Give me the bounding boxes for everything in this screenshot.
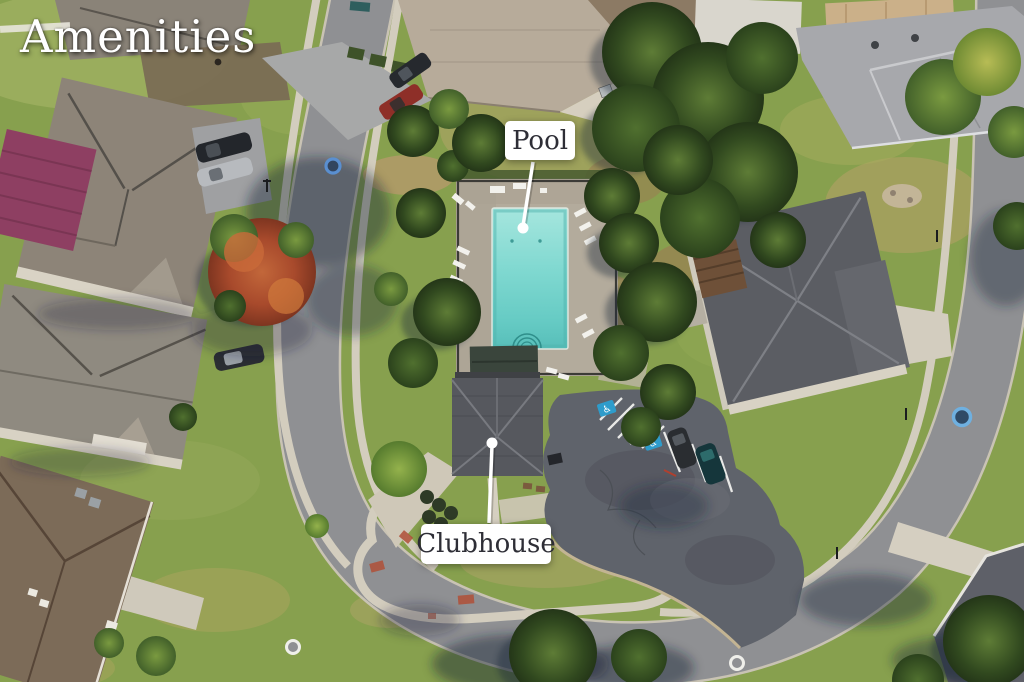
autumn-tree <box>208 214 316 326</box>
manhole-white-ring <box>287 641 300 654</box>
pool-callout-label: Pool <box>505 121 575 160</box>
page-title: Amenities <box>20 10 256 63</box>
aerial-photo: ♿ ♿ <box>0 0 1024 682</box>
clubhouse-callout-label: Clubhouse <box>421 524 551 564</box>
aerial-scene: ♿ ♿ <box>0 0 1024 682</box>
swimming-pool <box>492 208 568 349</box>
pool-target-dot <box>518 223 529 234</box>
manhole-blue-ring <box>326 159 340 173</box>
clubhouse-target-dot <box>487 438 498 449</box>
manhole-blue-ring <box>954 409 971 426</box>
manhole-white-ring <box>731 657 744 670</box>
